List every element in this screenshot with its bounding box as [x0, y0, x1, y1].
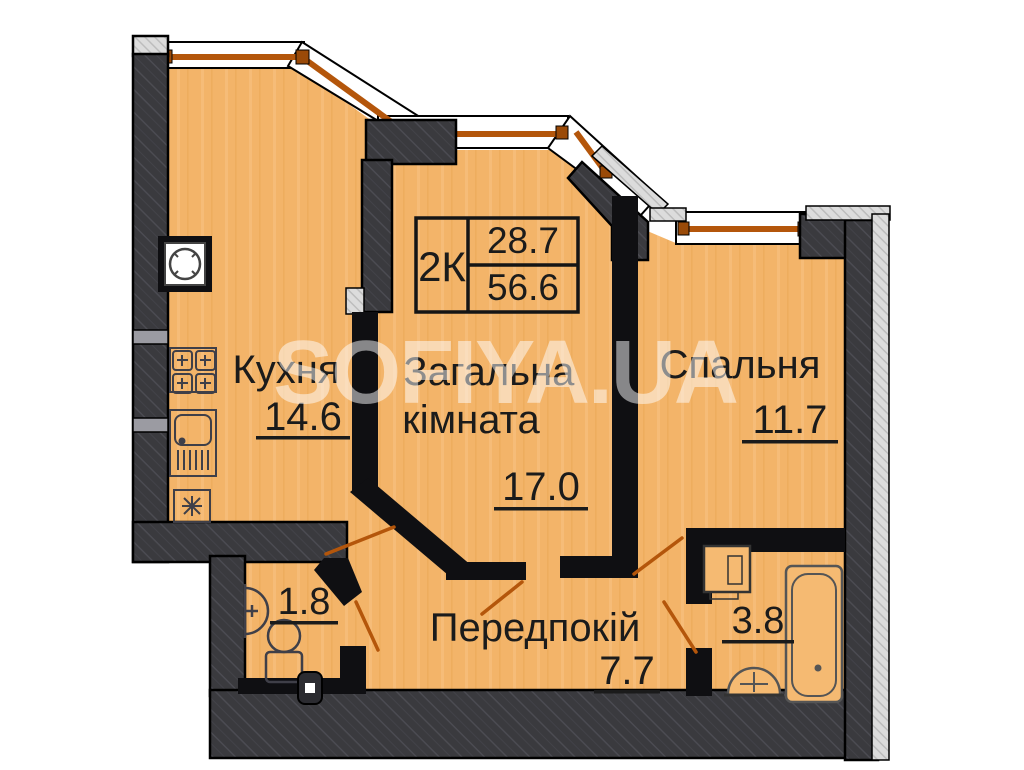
right-hatch-strip: [872, 214, 889, 760]
floor-plan-page: 2К 28.7 56.6 Кухня 14.6 Загальна кімната…: [0, 0, 1024, 770]
hall-top-wall: [560, 556, 614, 578]
bedroom-area-underline: [742, 440, 838, 444]
info-area-top: 28.7: [487, 220, 559, 261]
hallway-area: 7.7: [599, 649, 655, 693]
wc-bottom-wall: [238, 678, 352, 694]
left-wall: [133, 54, 168, 562]
hallway-area-underline: [594, 690, 660, 694]
living-door-stub: [446, 562, 526, 580]
bathroom-left-wall-bottom: [686, 648, 712, 696]
left-wall-tab-upper: [133, 330, 168, 344]
wc-area: 1.8: [278, 581, 331, 623]
info-area-bottom: 56.6: [487, 267, 559, 308]
bathroom-area-underline: [722, 640, 794, 644]
info-type-label: 2К: [418, 243, 466, 290]
kitchen-area-underline: [256, 436, 350, 440]
floor-plan: 2К 28.7 56.6 Кухня 14.6 Загальна кімната…: [0, 0, 1024, 770]
left-wall-tab-lower: [133, 418, 168, 432]
wc-left-wall: [210, 556, 245, 696]
hallway-label: Передпокій: [430, 606, 641, 650]
gamma-wall-vertical: [362, 160, 392, 312]
step-hatch-horizontal: [650, 208, 686, 221]
living-area: 17.0: [502, 465, 580, 509]
wc-area-underline: [270, 621, 338, 625]
vent-icon: [158, 236, 212, 292]
bathtub-icon: [786, 566, 842, 702]
gamma-wall-stub: [346, 288, 364, 314]
bedroom-area: 11.7: [753, 398, 828, 442]
wc-door-leaf-icon: [298, 672, 322, 704]
washing-machine-icon: [704, 546, 750, 599]
watermark: SOFIYA.UA: [273, 323, 737, 423]
bathroom-area: 3.8: [732, 600, 785, 642]
gamma-wall-horizontal: [366, 120, 456, 164]
living-area-underline: [494, 507, 588, 511]
